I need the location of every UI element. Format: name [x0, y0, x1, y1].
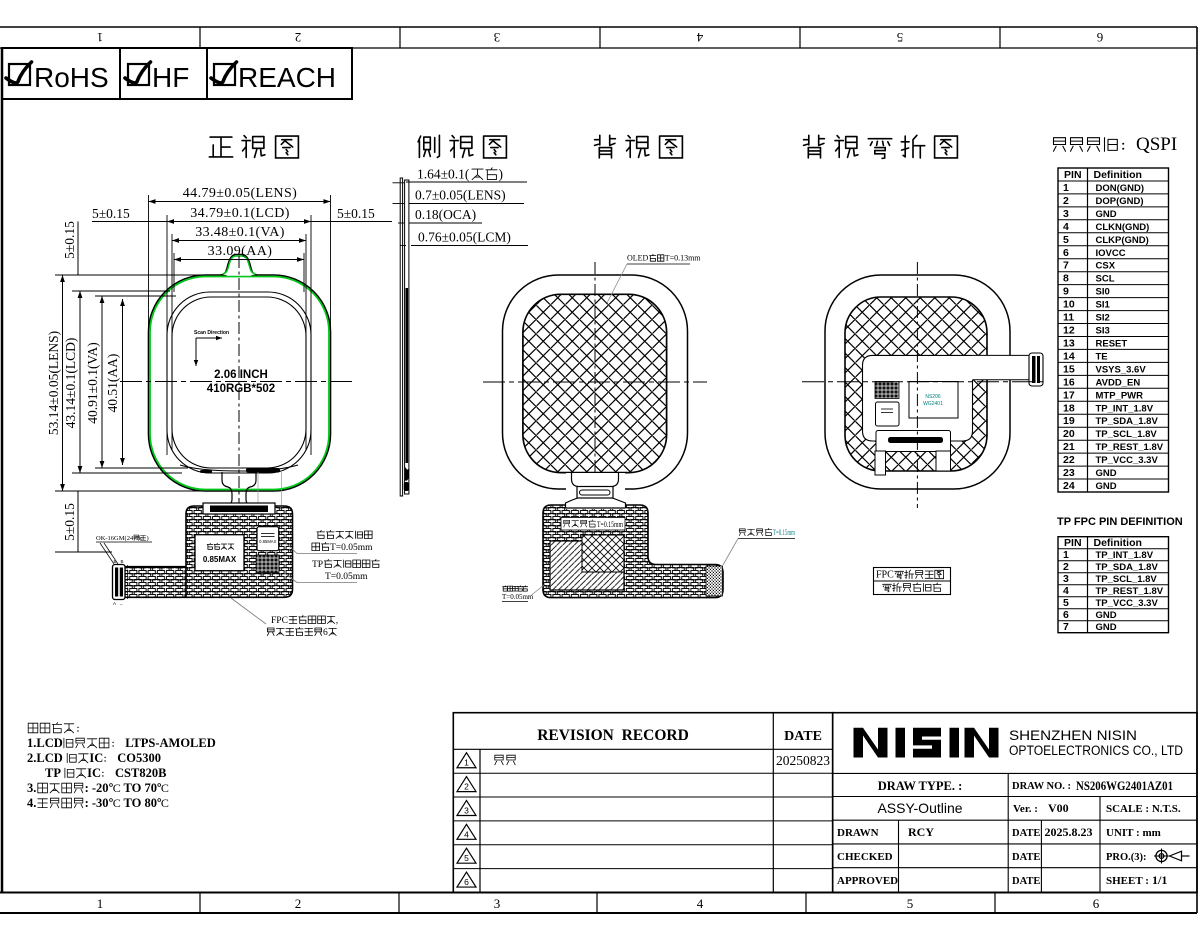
svg-text:53.14±0.05(LENS): 53.14±0.05(LENS): [46, 331, 61, 435]
svg-text:TP FPC PIN DEFINITION: TP FPC PIN DEFINITION: [1057, 516, 1183, 528]
svg-text:SCALE : N.T.S.: SCALE : N.T.S.: [1106, 803, 1181, 815]
svg-text:1.64±0.1(: 1.64±0.1(: [417, 167, 470, 182]
svg-text:TO 70: TO 70: [121, 781, 157, 795]
svg-text:VSYS_3.6V: VSYS_3.6V: [1096, 364, 1147, 375]
svg-text:43.14±0.1(LCD): 43.14±0.1(LCD): [63, 338, 78, 429]
svg-text:RoHS: RoHS: [34, 62, 109, 93]
svg-text:TP_SCL_1.8V: TP_SCL_1.8V: [1096, 574, 1158, 585]
svg-text:LTPS-AMOLED: LTPS-AMOLED: [122, 736, 216, 750]
svg-text:T=0.15mm: T=0.15mm: [597, 520, 623, 529]
svg-text:1.LCD: 1.LCD: [27, 736, 63, 750]
svg-text:TP_VCC_3.3V: TP_VCC_3.3V: [1096, 455, 1159, 466]
svg-text:NS206: NS206: [925, 394, 941, 400]
svg-text:RCY: RCY: [908, 825, 934, 839]
svg-text:Scan Direction: Scan Direction: [194, 330, 229, 336]
svg-text:TP_VCC_3.3V: TP_VCC_3.3V: [1096, 598, 1159, 609]
svg-text:REVISION RECORD: REVISION RECORD: [537, 727, 689, 744]
svg-text:DATE: DATE: [1012, 828, 1040, 839]
svg-text:V00: V00: [1048, 801, 1069, 815]
svg-text:DON(GND): DON(GND): [1096, 183, 1145, 194]
svg-text:FPC: FPC: [271, 616, 288, 626]
svg-text:12: 12: [1063, 325, 1075, 337]
svg-text:Definition: Definition: [1094, 169, 1142, 181]
svg-text:5: 5: [464, 853, 469, 863]
svg-text:33.09(AA): 33.09(AA): [208, 244, 273, 259]
svg-text:IOVCC: IOVCC: [1096, 248, 1126, 259]
svg-text:1: 1: [97, 30, 104, 45]
svg-text:Definition: Definition: [1094, 537, 1142, 549]
svg-text:NS206WG2401AZ01: NS206WG2401AZ01: [1076, 779, 1173, 793]
svg-text:7: 7: [1063, 260, 1069, 272]
svg-text:24: 24: [1063, 480, 1075, 492]
svg-text:18: 18: [1063, 402, 1075, 414]
svg-text:2: 2: [464, 782, 469, 792]
svg-text:CSX: CSX: [1096, 261, 1116, 272]
svg-text:5±0.15: 5±0.15: [62, 503, 77, 541]
svg-text:DRAW NO. :: DRAW NO. :: [1012, 781, 1071, 792]
svg-text:T=0.05mm: T=0.05mm: [325, 572, 368, 582]
svg-text:SHENZHEN NISIN: SHENZHEN NISIN: [1009, 728, 1137, 743]
svg-text:3: 3: [464, 806, 469, 816]
svg-text:3: 3: [494, 30, 501, 45]
svg-text:RESET: RESET: [1096, 339, 1128, 350]
svg-text:1/1: 1/1: [1152, 873, 1167, 887]
svg-text:6: 6: [464, 877, 469, 887]
svg-text:TP: TP: [45, 766, 63, 780]
svg-text:DATE: DATE: [784, 729, 822, 744]
svg-text:SHEET :: SHEET :: [1106, 875, 1149, 887]
svg-text:4: 4: [1063, 221, 1069, 233]
svg-text:4: 4: [1063, 585, 1069, 597]
svg-text:GND: GND: [1096, 622, 1117, 633]
svg-text:SI1: SI1: [1096, 300, 1111, 311]
svg-text:CST820B: CST820B: [112, 766, 167, 780]
svg-text:8: 8: [1063, 273, 1069, 285]
svg-text:13: 13: [1063, 338, 1075, 350]
svg-text:SI2: SI2: [1096, 313, 1110, 324]
svg-text:T=0.15mm: T=0.15mm: [773, 527, 795, 537]
svg-text:TP: TP: [312, 560, 323, 570]
svg-text:CLKN(GND): CLKN(GND): [1096, 222, 1150, 233]
svg-text:1: 1: [1063, 549, 1069, 561]
svg-text:3: 3: [494, 896, 501, 911]
svg-text:5: 5: [1063, 597, 1069, 609]
svg-text:4: 4: [696, 30, 703, 45]
svg-text:5: 5: [907, 896, 914, 911]
svg-text:APPROVED: APPROVED: [837, 875, 898, 887]
svg-text:DRAW TYPE. :: DRAW TYPE. :: [878, 779, 963, 793]
svg-text:7: 7: [1063, 621, 1069, 633]
svg-text:): ): [499, 167, 504, 182]
svg-text:T=0.13mm: T=0.13mm: [665, 254, 702, 263]
svg-text:5±0.15: 5±0.15: [337, 206, 375, 221]
svg-text:19: 19: [1063, 415, 1075, 427]
svg-text:CLKP(GND): CLKP(GND): [1096, 235, 1149, 246]
svg-text:TP_SDA_1.8V: TP_SDA_1.8V: [1096, 416, 1159, 427]
svg-text:SI3: SI3: [1096, 326, 1110, 337]
svg-text:34.79±0.1(LCD): 34.79±0.1(LCD): [190, 206, 290, 221]
svg-text:DOP(GND): DOP(GND): [1096, 196, 1144, 207]
svg-text:5±0.15: 5±0.15: [92, 206, 130, 221]
svg-text:0.7±0.05(LENS): 0.7±0.05(LENS): [415, 188, 506, 203]
svg-text:CHECKED: CHECKED: [837, 851, 893, 863]
svg-text:): ): [147, 535, 149, 542]
svg-text:10: 10: [1063, 299, 1075, 311]
svg-text:GND: GND: [1096, 468, 1117, 479]
svg-text:,: ,: [336, 616, 338, 626]
svg-text:4: 4: [697, 896, 704, 911]
svg-text:0.18(OCA): 0.18(OCA): [415, 207, 476, 222]
svg-text:B: B: [121, 559, 124, 564]
svg-text:Ver. :: Ver. :: [1013, 803, 1038, 815]
svg-text:UNIT : mm: UNIT : mm: [1106, 827, 1161, 839]
svg-text:20250823: 20250823: [776, 753, 830, 768]
svg-text:MTP_PWR: MTP_PWR: [1096, 390, 1144, 401]
svg-text:TP_SCL_1.8V: TP_SCL_1.8V: [1096, 429, 1158, 440]
svg-text:OPTOELECTRONICS CO., LTD: OPTOELECTRONICS CO., LTD: [1009, 743, 1183, 758]
svg-text:ASSY-Outline: ASSY-Outline: [877, 800, 962, 816]
svg-text:TP_REST_1.8V: TP_REST_1.8V: [1096, 586, 1164, 597]
svg-text:1: 1: [97, 896, 104, 911]
svg-text:1: 1: [464, 758, 469, 768]
svg-text:TP_REST_1.8V: TP_REST_1.8V: [1096, 442, 1164, 453]
svg-text:6: 6: [1063, 609, 1069, 621]
svg-text:AVDD_EN: AVDD_EN: [1096, 377, 1141, 388]
svg-text:0.76±0.05(LCM): 0.76±0.05(LCM): [418, 230, 511, 245]
svg-text:PRO.(3):: PRO.(3):: [1106, 852, 1147, 863]
svg-text:FPC: FPC: [876, 570, 894, 581]
svg-text:REACH: REACH: [238, 62, 336, 93]
svg-text:DRAWN: DRAWN: [837, 827, 879, 839]
svg-text:6: 6: [323, 628, 328, 638]
svg-text:23: 23: [1063, 467, 1075, 479]
svg-text:0.85MAX: 0.85MAX: [203, 555, 237, 564]
svg-text:40.51(AA): 40.51(AA): [105, 354, 120, 413]
svg-text:5: 5: [897, 30, 904, 45]
svg-text:TO 80: TO 80: [121, 796, 157, 810]
svg-text:TP_INT_1.8V: TP_INT_1.8V: [1096, 403, 1154, 414]
svg-text:2025.8.23: 2025.8.23: [1045, 825, 1093, 839]
svg-text:IC: IC: [89, 751, 103, 765]
svg-text:40.91±0.1(VA): 40.91±0.1(VA): [85, 342, 100, 423]
svg-text:6: 6: [1096, 30, 1103, 45]
svg-text:0.85MAX: 0.85MAX: [259, 539, 276, 544]
svg-text:T=0.05mm: T=0.05mm: [330, 543, 373, 553]
svg-text:GND: GND: [1096, 209, 1117, 220]
svg-text:33.48±0.1(VA): 33.48±0.1(VA): [195, 225, 285, 240]
svg-text:DATE: DATE: [1012, 852, 1040, 863]
svg-text:IC: IC: [87, 766, 101, 780]
svg-text:6: 6: [1093, 896, 1100, 911]
svg-text:_: _: [119, 600, 123, 605]
svg-text:2: 2: [1063, 195, 1069, 207]
svg-text:C: C: [161, 796, 169, 810]
svg-text:3: 3: [1063, 208, 1069, 220]
svg-text:CO5300: CO5300: [114, 751, 161, 765]
svg-text:4.: 4.: [27, 796, 36, 810]
svg-text:PIN: PIN: [1064, 169, 1082, 181]
svg-text:2: 2: [295, 30, 302, 45]
svg-text:22: 22: [1063, 454, 1075, 466]
svg-text:1: 1: [1063, 182, 1069, 194]
svg-text:11: 11: [1063, 312, 1074, 324]
svg-text:3: 3: [1063, 573, 1069, 585]
svg-text:2: 2: [1063, 561, 1069, 573]
svg-text:SI0: SI0: [1096, 287, 1110, 298]
svg-text:9: 9: [1063, 286, 1069, 298]
svg-text:A: A: [113, 601, 116, 606]
svg-text:410RGB*502: 410RGB*502: [207, 383, 275, 395]
svg-text:5±0.15: 5±0.15: [62, 221, 77, 259]
svg-text:OK-16GM(24-0k: OK-16GM(24-0k: [96, 535, 143, 542]
svg-text:5: 5: [1063, 234, 1069, 246]
svg-text:2: 2: [295, 896, 302, 911]
svg-text:: -30: : -30: [85, 796, 109, 810]
svg-text:14: 14: [1063, 350, 1075, 362]
svg-text:PIN: PIN: [1064, 537, 1082, 549]
svg-text:WG2401: WG2401: [923, 401, 943, 407]
svg-text:3.: 3.: [27, 781, 36, 795]
svg-text:: -20: : -20: [85, 781, 109, 795]
svg-text:GND: GND: [1096, 610, 1117, 621]
svg-text:TP_INT_1.8V: TP_INT_1.8V: [1096, 550, 1154, 561]
svg-text:6: 6: [1063, 247, 1069, 259]
svg-text:OLED: OLED: [627, 254, 649, 263]
svg-text:DATE: DATE: [1012, 876, 1040, 887]
svg-text:QSPI: QSPI: [1136, 134, 1177, 155]
svg-text:17: 17: [1063, 389, 1075, 401]
svg-text:TE: TE: [1096, 351, 1108, 362]
svg-text:C: C: [161, 781, 169, 795]
svg-text:2.LCD: 2.LCD: [27, 751, 66, 765]
svg-text:44.79±0.05(LENS): 44.79±0.05(LENS): [183, 186, 297, 201]
svg-text:SCL: SCL: [1096, 274, 1115, 285]
svg-text:GND: GND: [1096, 481, 1117, 492]
svg-text:TP_SDA_1.8V: TP_SDA_1.8V: [1096, 562, 1159, 573]
svg-text:HF: HF: [152, 62, 189, 93]
svg-text:21: 21: [1063, 441, 1075, 453]
svg-text:2.06 INCH: 2.06 INCH: [214, 369, 268, 381]
svg-text:16: 16: [1063, 376, 1075, 388]
svg-text:15: 15: [1063, 363, 1075, 375]
svg-text:20: 20: [1063, 428, 1075, 440]
svg-text:4: 4: [464, 829, 469, 839]
